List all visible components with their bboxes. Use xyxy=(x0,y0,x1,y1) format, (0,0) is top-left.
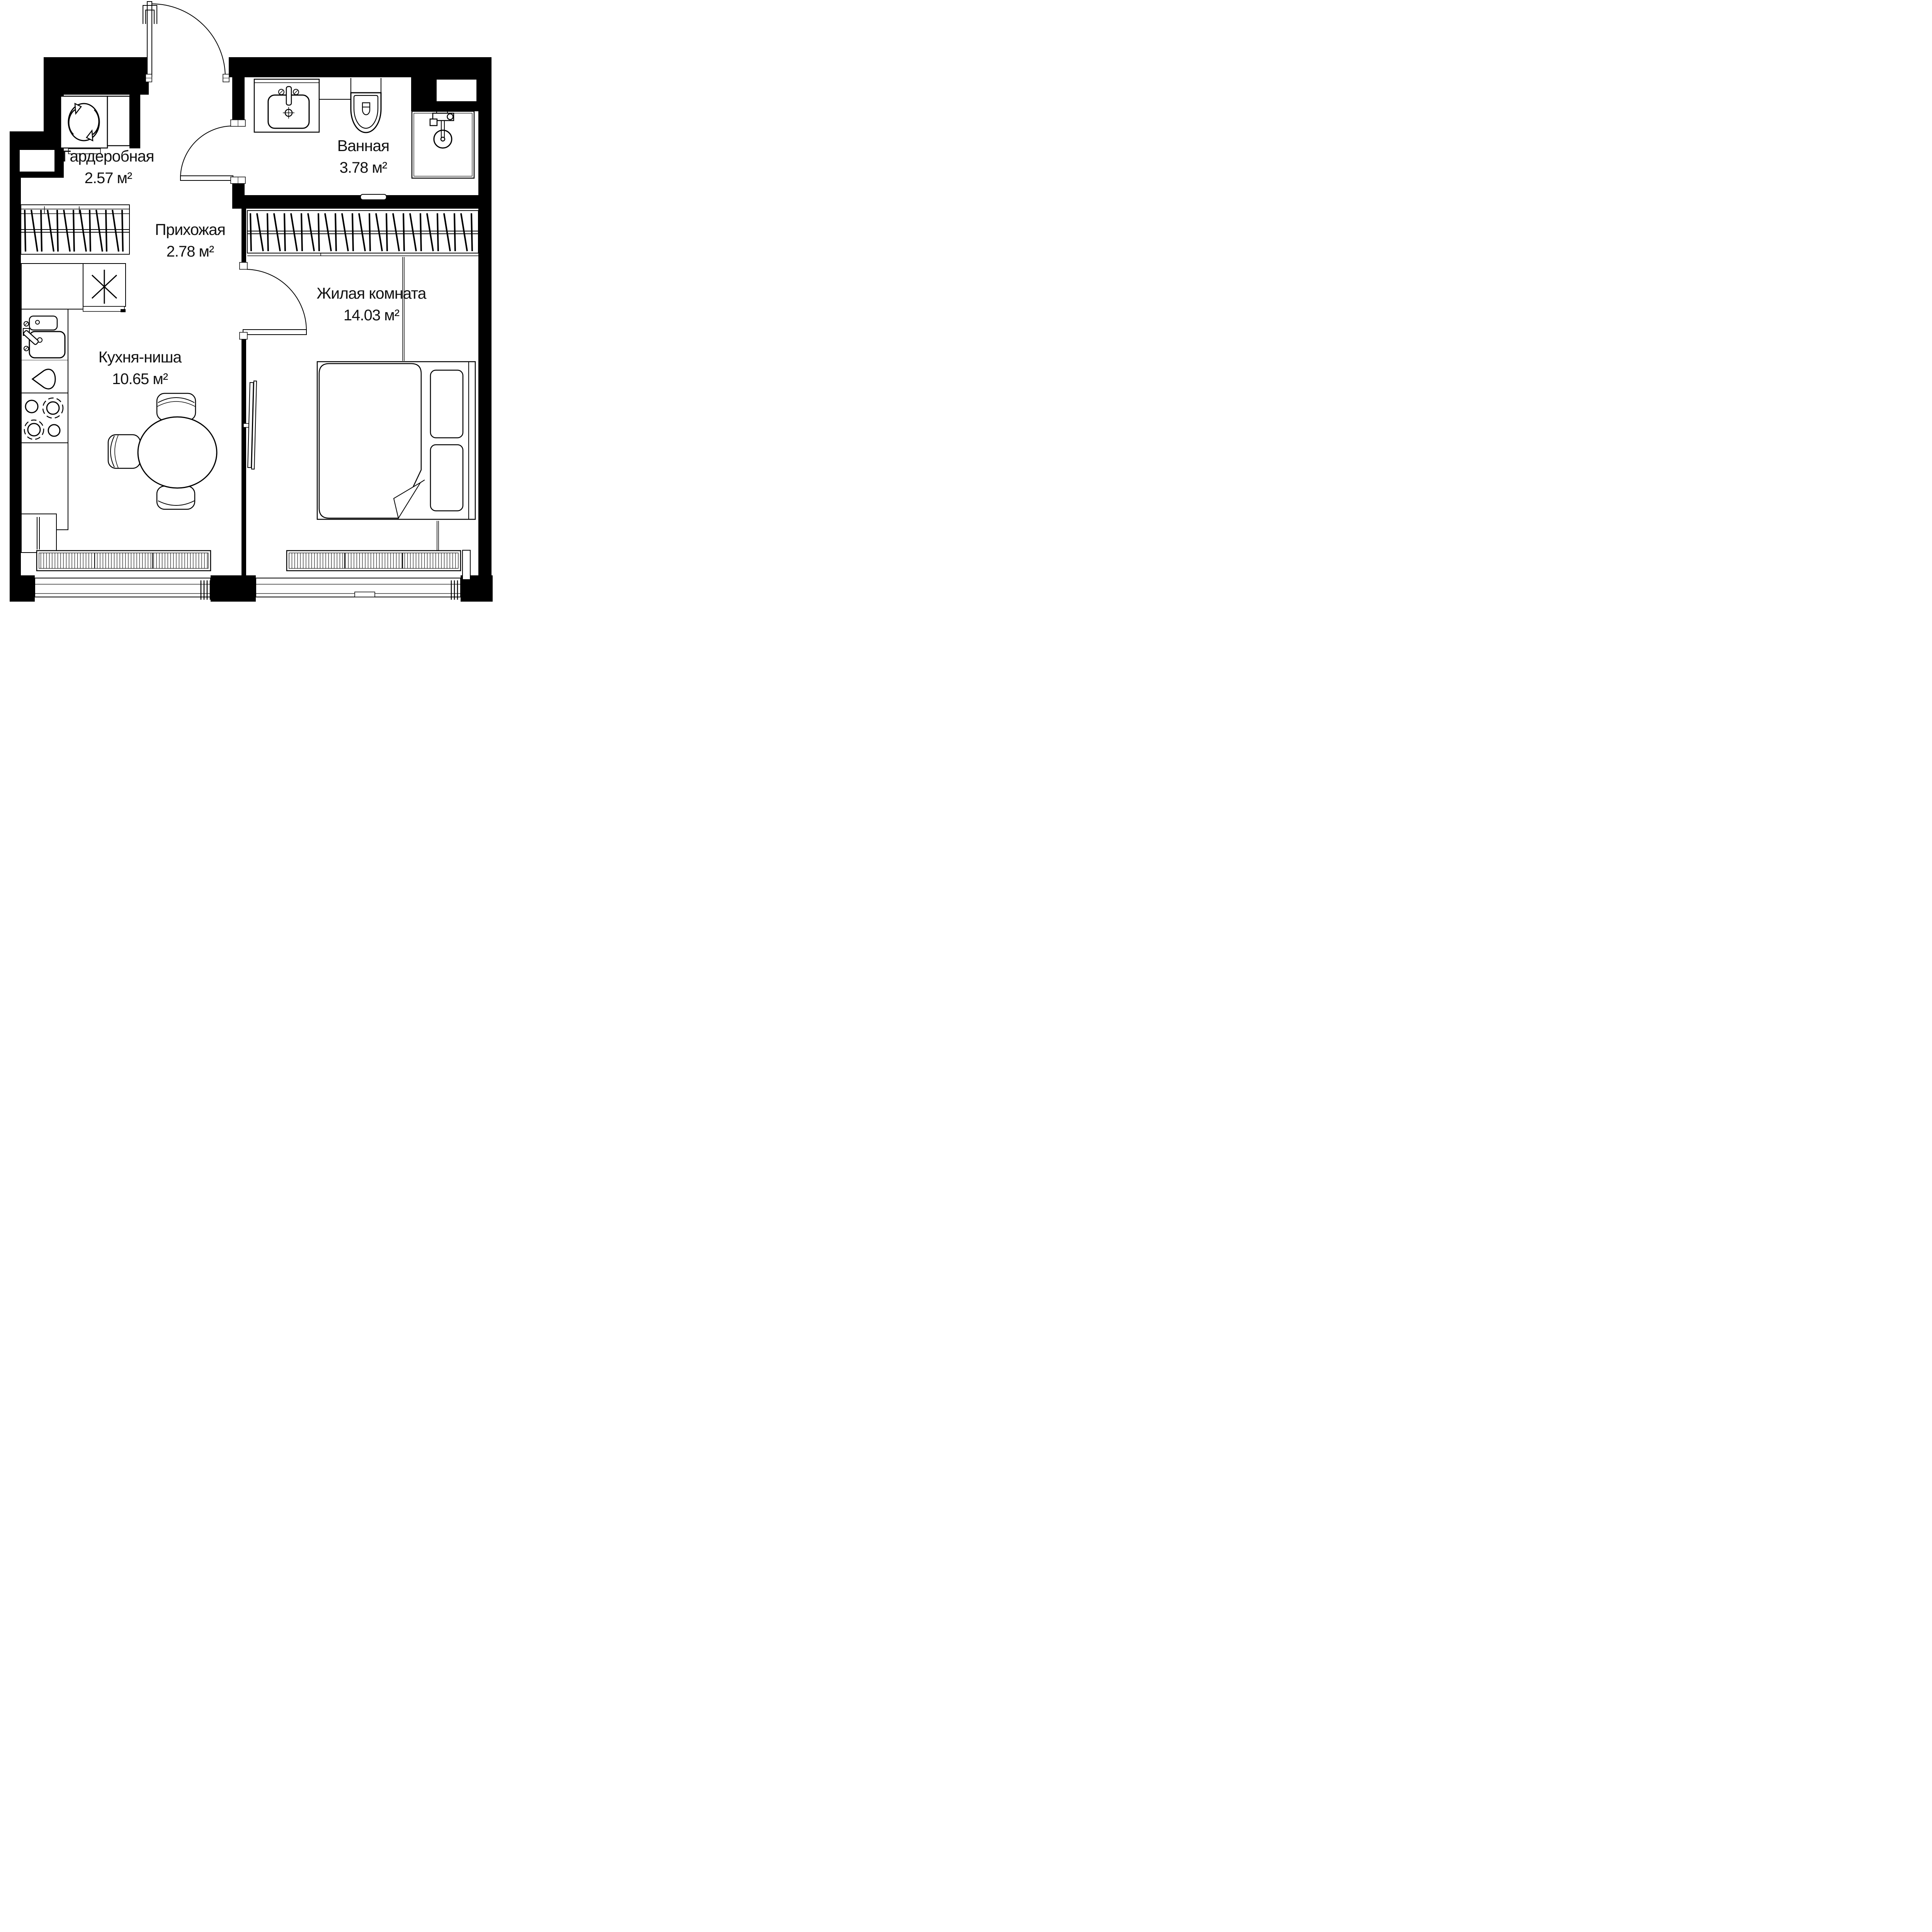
wall-right xyxy=(478,57,492,575)
wall-partition-upper xyxy=(241,209,246,263)
pillow xyxy=(430,445,463,511)
door-leaf xyxy=(243,330,306,335)
wall-top-right xyxy=(229,57,479,77)
window-column xyxy=(463,550,470,580)
wardrobe-shelf xyxy=(68,149,100,154)
chair xyxy=(157,486,195,509)
chair xyxy=(157,393,196,420)
wardrobe-cabinet xyxy=(107,96,130,146)
door-leaf xyxy=(180,176,233,180)
pillow xyxy=(430,370,463,438)
kitchen-tall-cabinet xyxy=(21,264,83,309)
floor-plan-drawing xyxy=(0,0,493,602)
ventilation-niche-right xyxy=(437,80,476,101)
kitchen-base-cabinet xyxy=(21,514,56,553)
clothes-rack-right xyxy=(247,211,484,256)
dining-table xyxy=(138,417,217,488)
floor-plan: Гардеробная 2.57 м² Прихожая 2.78 м² Ван… xyxy=(0,0,493,602)
door-jamb xyxy=(240,262,247,269)
cabinet-plinth xyxy=(83,306,124,311)
faucet-icon xyxy=(286,87,291,105)
door-jamb xyxy=(240,332,247,339)
clothes-rack-left xyxy=(21,205,135,254)
wall-left-lower xyxy=(10,178,21,575)
window-left xyxy=(35,578,211,600)
bed xyxy=(317,362,475,519)
service-hatch xyxy=(361,194,386,200)
radiator-right xyxy=(287,551,461,571)
radiator-left xyxy=(37,551,211,571)
washing-machine xyxy=(61,96,107,148)
stove xyxy=(21,393,68,443)
wall-bathroom-left-upper xyxy=(232,77,245,121)
wall-wardrobe-divider xyxy=(129,95,140,148)
door-leaf xyxy=(147,2,152,77)
ventilation-niche-left xyxy=(20,150,54,172)
chair xyxy=(108,435,140,468)
wall-partition-lower xyxy=(241,339,246,575)
